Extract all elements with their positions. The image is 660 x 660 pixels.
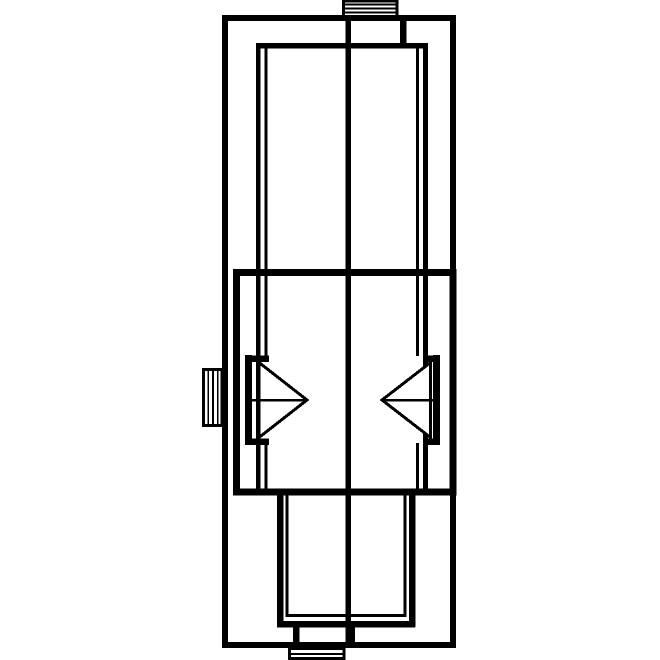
page bbox=[0, 0, 660, 660]
diagram bbox=[0, 0, 660, 660]
